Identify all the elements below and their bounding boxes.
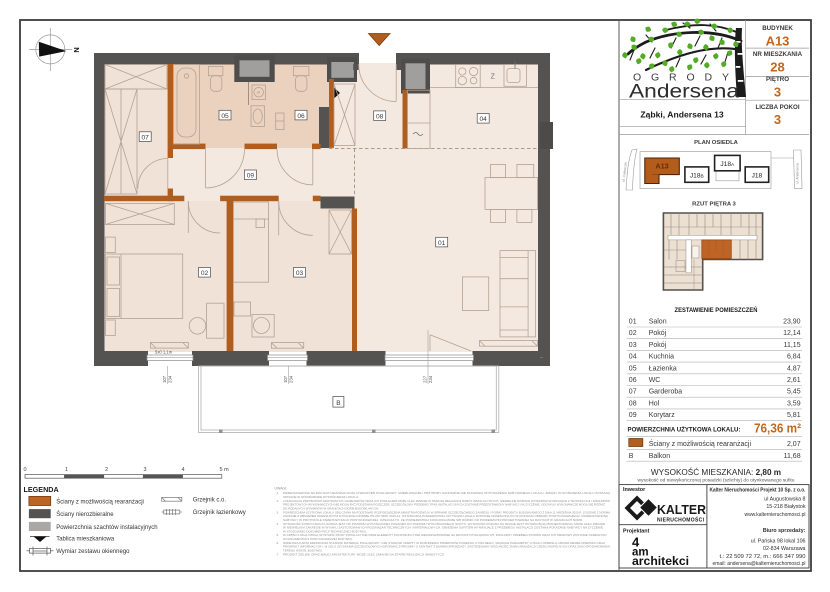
svg-text:5 m: 5 m (220, 467, 230, 473)
svg-text:PROSPEKT INFORMACYJNY. W CELU: PROSPEKT INFORMACYJNY. W CELU UZYSKANIA … (283, 544, 611, 549)
svg-text:3: 3 (774, 112, 781, 127)
svg-text:WYSOKOŚĆ MIESZKANIA: 2,80 m: WYSOKOŚĆ MIESZKANIA: 2,80 m (651, 466, 781, 477)
svg-text:5,81: 5,81 (787, 412, 801, 419)
svg-text:76,36 m²: 76,36 m² (754, 421, 802, 436)
svg-text:Inwestor: Inwestor (623, 487, 646, 493)
svg-text:07: 07 (142, 134, 150, 141)
svg-text:Hol: Hol (649, 400, 660, 407)
svg-text:15-218 Białystok: 15-218 Białystok (766, 504, 806, 510)
svg-text:J18: J18 (752, 172, 763, 179)
svg-text:06: 06 (629, 377, 637, 384)
svg-text:Kalter Nieruchomości Projekt 1: Kalter Nieruchomości Projekt 10 Sp. z o.… (710, 488, 806, 494)
svg-text:03: 03 (296, 270, 304, 277)
svg-text:08: 08 (376, 113, 384, 120)
svg-text:PROJEKT ZIELENI ORAZ MAŁEJ ARC: PROJEKT ZIELENI ORAZ MAŁEJ ARCHITEKTURY … (283, 551, 445, 556)
svg-text:Ząbki, Andersena 13: Ząbki, Andersena 13 (640, 110, 723, 120)
svg-text:LEGENDA: LEGENDA (24, 485, 59, 494)
svg-text:ZESTAWIENIE POMIESZCZEŃ: ZESTAWIENIE POMIESZCZEŃ (675, 305, 758, 314)
svg-text:5,45: 5,45 (787, 389, 801, 396)
svg-text:01: 01 (629, 319, 637, 326)
svg-text:3: 3 (774, 85, 781, 100)
svg-text:08: 08 (629, 400, 637, 407)
svg-text:www.kalternieruchomosci.pl: www.kalternieruchomosci.pl (745, 512, 806, 518)
svg-text:107: 107 (283, 375, 288, 383)
svg-text:02: 02 (629, 330, 637, 337)
svg-text:02: 02 (201, 270, 209, 277)
svg-text:ul. Andersena: ul. Andersena (796, 163, 800, 184)
svg-text:Wymiar zestawu okiennego: Wymiar zestawu okiennego (56, 549, 130, 555)
svg-text:architekci: architekci (632, 556, 689, 568)
svg-text:Tablica mieszkaniowa: Tablica mieszkaniowa (56, 537, 115, 543)
svg-text:LICZBA POKOI: LICZBA POKOI (755, 104, 799, 111)
svg-text:A13: A13 (655, 161, 668, 170)
svg-text:Korytarz: Korytarz (649, 412, 676, 419)
svg-text:Ściany nierozbieralne: Ściany nierozbieralne (56, 510, 114, 518)
svg-text:Ściany z możliwością rearanżac: Ściany z możliwością rearanżacji (56, 497, 144, 505)
svg-text:11,68: 11,68 (784, 453, 801, 460)
svg-text:WC: WC (649, 377, 661, 384)
svg-text:05: 05 (221, 113, 229, 120)
svg-text:4,87: 4,87 (787, 365, 801, 372)
svg-text:t.: 22 509 72 72, m.: 666 347: t.: 22 509 72 72, m.: 666 347 990 (720, 554, 806, 560)
svg-text:07: 07 (629, 389, 637, 396)
svg-text:Andersena: Andersena (629, 81, 739, 103)
svg-text:01: 01 (438, 240, 446, 247)
svg-text:03: 03 (629, 342, 637, 349)
svg-text:234: 234 (428, 375, 433, 383)
svg-text:NIERUCHOMOŚCI: NIERUCHOMOŚCI (657, 517, 705, 524)
svg-text:05: 05 (629, 365, 637, 372)
svg-text:1.: 1. (277, 491, 280, 495)
svg-text:7.: 7. (277, 552, 280, 556)
svg-text:04: 04 (480, 116, 488, 123)
svg-text:3: 3 (144, 467, 147, 473)
svg-text:234: 234 (289, 375, 294, 383)
svg-text:NR MIESZKANIA: NR MIESZKANIA (753, 51, 803, 58)
svg-text:Biuro sprzedaży:: Biuro sprzedaży: (763, 528, 806, 534)
svg-text:ul Augustowska 8: ul Augustowska 8 (764, 497, 805, 503)
svg-text:0: 0 (24, 467, 27, 473)
svg-text:P: P (257, 90, 260, 95)
svg-text:02-834 Warszawa: 02-834 Warszawa (763, 546, 806, 552)
svg-text:PLAN OSIEDLA: PLAN OSIEDLA (694, 140, 739, 146)
svg-text:A13: A13 (766, 34, 790, 49)
svg-text:2.: 2. (277, 499, 280, 503)
svg-text:J18B: J18B (690, 172, 704, 179)
svg-text:28: 28 (770, 60, 784, 75)
svg-text:6.: 6. (277, 541, 280, 545)
svg-text:RZUT PIĘTRA 3: RZUT PIĘTRA 3 (692, 202, 736, 208)
svg-text:B: B (336, 400, 341, 407)
svg-text:Ściany z możliwością rearanżac: Ściany z możliwością rearanżacji (649, 439, 752, 448)
svg-text:Garderoba: Garderoba (649, 389, 683, 396)
svg-text:04: 04 (629, 354, 637, 361)
svg-text:12,14: 12,14 (783, 330, 801, 337)
svg-text:5.: 5. (277, 533, 280, 537)
svg-text:227: 227 (422, 375, 427, 383)
svg-text:2,07: 2,07 (787, 441, 801, 448)
svg-text:5x0 1,1m: 5x0 1,1m (155, 349, 173, 354)
svg-text:Łazienka: Łazienka (649, 365, 677, 372)
svg-text:PIĘTRO: PIĘTRO (766, 76, 789, 83)
svg-text:J18A: J18A (720, 161, 735, 168)
svg-text:UWAGI:: UWAGI: (275, 487, 288, 491)
svg-text:Powierzchnia szachtów instalac: Powierzchnia szachtów instalacyjnych (56, 525, 157, 531)
svg-text:Balkon: Balkon (649, 453, 671, 460)
svg-text:234: 234 (168, 375, 173, 383)
svg-text:Pokój: Pokój (649, 330, 667, 337)
svg-text:23,90: 23,90 (783, 319, 801, 326)
svg-text:1: 1 (65, 467, 68, 473)
svg-text:4.: 4. (277, 522, 280, 526)
svg-text:Grzejnik c.o.: Grzejnik c.o. (193, 497, 227, 503)
svg-text:4: 4 (182, 467, 185, 473)
svg-text:09: 09 (629, 412, 637, 419)
svg-text:11,15: 11,15 (784, 342, 801, 349)
svg-text:ul. Pańska 98 lokal 106: ul. Pańska 98 lokal 106 (751, 539, 806, 545)
svg-text:Grzejnik łazienkowy: Grzejnik łazienkowy (193, 510, 246, 516)
svg-text:POWIERZCHNIA UŻYTKOWA LOKALU:: POWIERZCHNIA UŻYTKOWA LOKALU: (628, 426, 741, 434)
svg-text:3.: 3. (277, 510, 280, 514)
svg-text:email: andersena@kalternieruch: email: andersena@kalternieruchomosci.pl (713, 561, 806, 567)
svg-text:09: 09 (247, 173, 255, 180)
svg-text:B: B (629, 453, 634, 460)
svg-text:wysokość od niewykończonej pos: wysokość od niewykończonej posadzki (szl… (638, 478, 795, 484)
svg-text:Kuchnia: Kuchnia (649, 354, 674, 361)
svg-text:6,84: 6,84 (787, 354, 801, 361)
svg-text:107: 107 (162, 375, 167, 383)
svg-text:N: N (72, 47, 81, 52)
svg-text:06: 06 (297, 113, 305, 120)
svg-text:2,61: 2,61 (787, 377, 801, 384)
svg-text:BUDYNEK: BUDYNEK (762, 25, 793, 32)
svg-text:KALTER: KALTER (657, 503, 706, 517)
svg-text:Z: Z (491, 74, 496, 81)
svg-text:Pokój: Pokój (649, 342, 667, 349)
svg-text:3,59: 3,59 (787, 400, 801, 407)
svg-text:Salon: Salon (649, 319, 667, 326)
svg-text:2: 2 (105, 467, 108, 473)
